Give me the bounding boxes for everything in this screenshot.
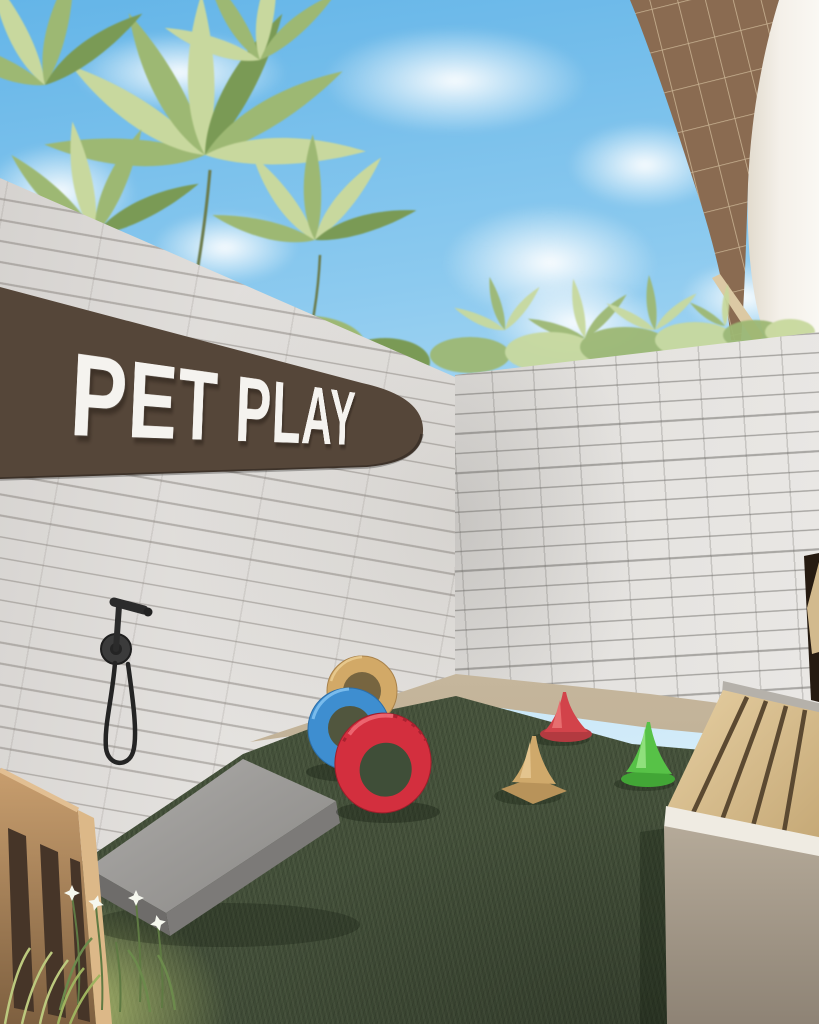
white-flowers <box>0 796 167 932</box>
pet-play-area-render: PET PLAY <box>0 0 819 1024</box>
flowers-and-tufts <box>0 0 819 1024</box>
bright-grass-tuft <box>5 948 100 1024</box>
